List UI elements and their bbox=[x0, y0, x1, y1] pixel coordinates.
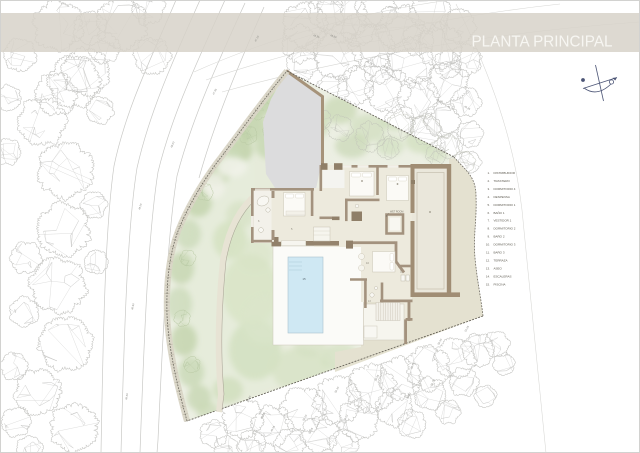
svg-text:2.: 2. bbox=[487, 179, 490, 183]
svg-text:9.: 9. bbox=[487, 235, 490, 239]
svg-text:13.: 13. bbox=[486, 266, 490, 270]
svg-text:TERRAZA: TERRAZA bbox=[494, 258, 508, 262]
svg-text:DORMITORIO 3: DORMITORIO 3 bbox=[494, 243, 516, 247]
svg-text:DESPENSA: DESPENSA bbox=[494, 195, 510, 199]
svg-text:DORMITORIO 4: DORMITORIO 4 bbox=[494, 187, 516, 191]
svg-text:8.: 8. bbox=[487, 227, 490, 231]
svg-text:6.: 6. bbox=[487, 211, 490, 215]
svg-text:TRASTERO: TRASTERO bbox=[494, 179, 511, 183]
svg-text:ESCALERAS: ESCALERAS bbox=[494, 274, 512, 278]
svg-text:WET ROOM: WET ROOM bbox=[390, 210, 403, 213]
svg-text:PLANTA PRINCIPAL: PLANTA PRINCIPAL bbox=[472, 34, 613, 51]
svg-text:14.: 14. bbox=[486, 274, 490, 278]
svg-text:VESTIDOR 1: VESTIDOR 1 bbox=[494, 219, 512, 223]
svg-text:10.: 10. bbox=[486, 243, 490, 247]
svg-text:3.: 3. bbox=[487, 187, 490, 191]
svg-text:DORMITORIO 1: DORMITORIO 1 bbox=[494, 203, 516, 207]
svg-text:BAÑO 2: BAÑO 2 bbox=[494, 234, 505, 239]
svg-text:ASEO: ASEO bbox=[494, 266, 503, 270]
svg-text:7.: 7. bbox=[487, 219, 490, 223]
svg-text:PISCINA: PISCINA bbox=[494, 282, 506, 286]
svg-text:BAÑO 1: BAÑO 1 bbox=[494, 210, 505, 215]
svg-text:DORMITORIO 2: DORMITORIO 2 bbox=[494, 227, 516, 231]
svg-text:15: 15 bbox=[302, 277, 306, 281]
svg-text:BAÑO 3: BAÑO 3 bbox=[494, 250, 505, 255]
svg-text:DISTRIBUIDOR: DISTRIBUIDOR bbox=[494, 171, 516, 175]
svg-text:1.: 1. bbox=[487, 171, 490, 175]
svg-text:11.: 11. bbox=[486, 251, 490, 255]
svg-text:15.: 15. bbox=[486, 282, 490, 286]
svg-text:5.: 5. bbox=[487, 203, 490, 207]
svg-text:4.: 4. bbox=[487, 195, 490, 199]
svg-text:12.: 12. bbox=[486, 258, 490, 262]
